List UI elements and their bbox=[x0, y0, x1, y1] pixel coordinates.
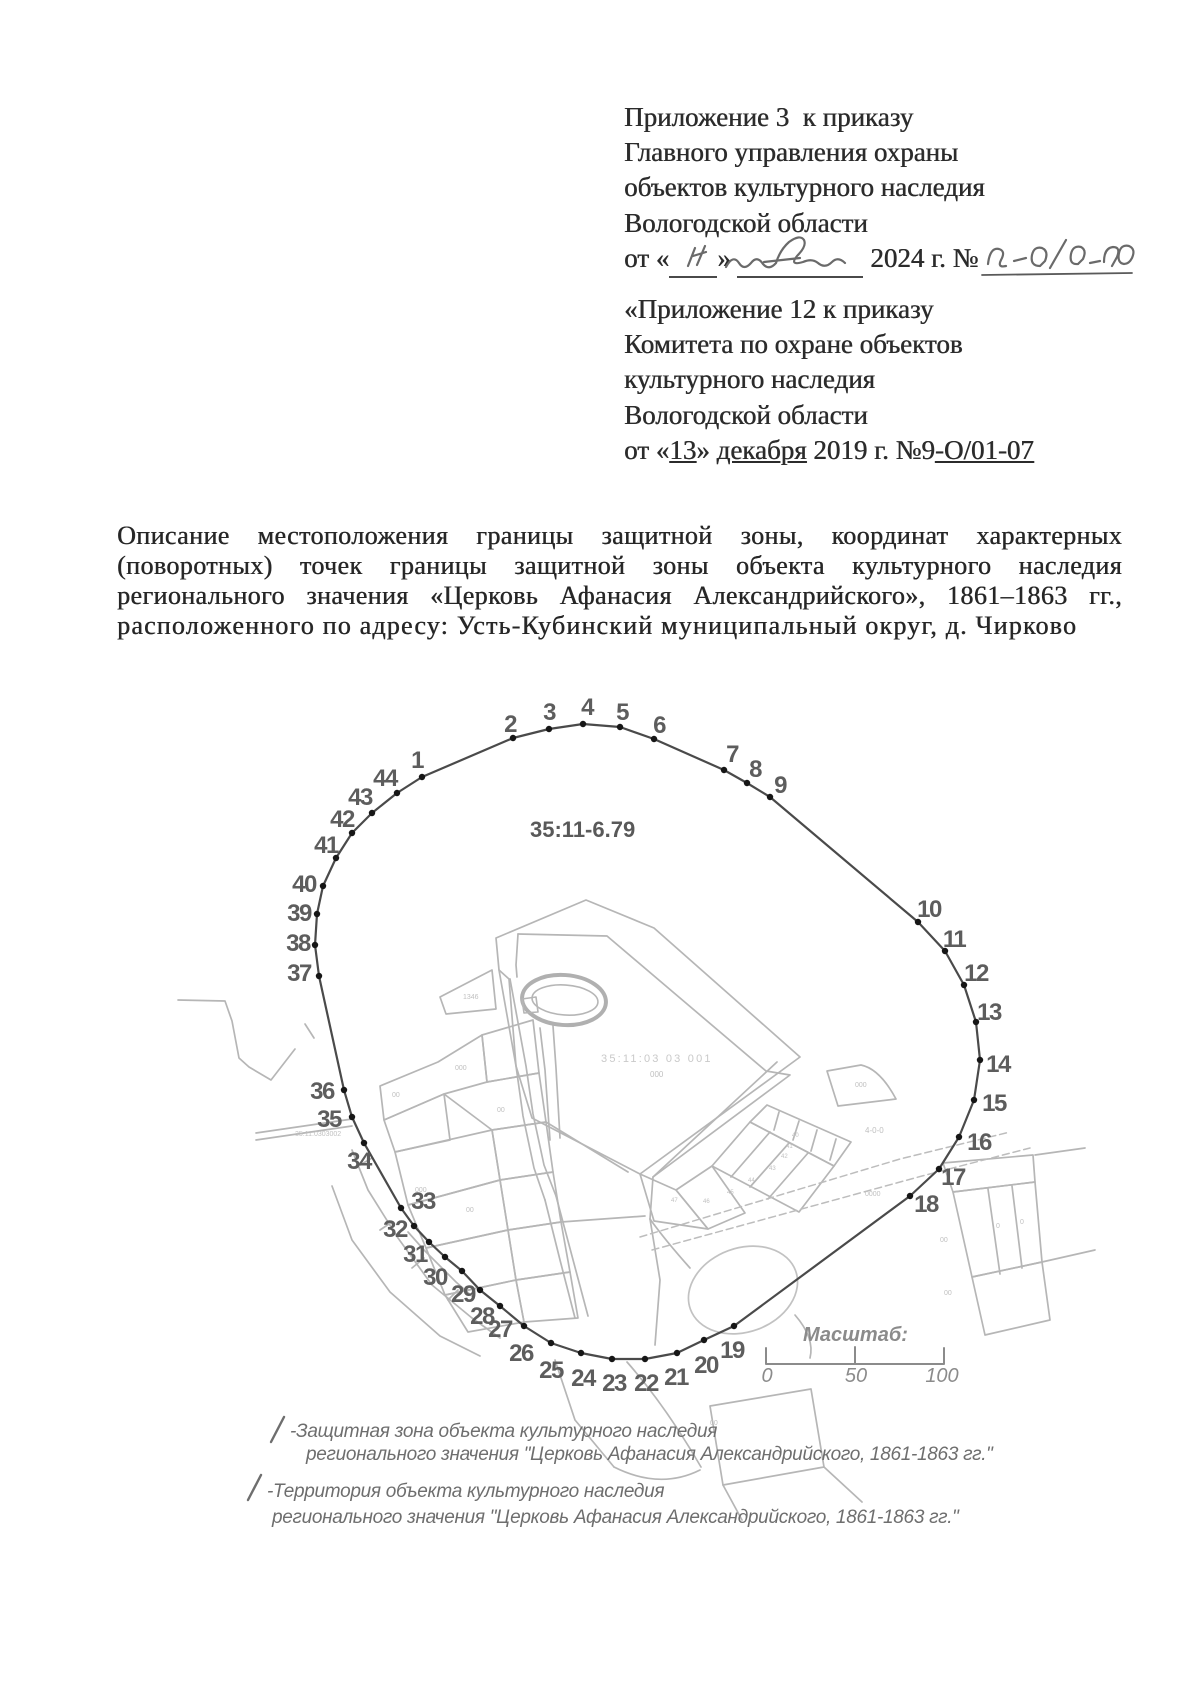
svg-text:Масштаб:: Масштаб: bbox=[803, 1324, 908, 1346]
svg-text:44: 44 bbox=[373, 765, 399, 792]
svg-text:20: 20 bbox=[694, 1352, 719, 1379]
svg-text:-Защитная зона объекта культур: -Защитная зона объекта культурного насле… bbox=[290, 1421, 717, 1442]
svg-text:31: 31 bbox=[403, 1241, 428, 1268]
svg-text:9: 9 bbox=[774, 772, 787, 799]
svg-text:4-0-0: 4-0-0 bbox=[865, 1126, 884, 1135]
svg-text:00: 00 bbox=[466, 1207, 474, 1214]
svg-text:15: 15 bbox=[982, 1090, 1007, 1117]
svg-text:45: 45 bbox=[727, 1190, 734, 1196]
svg-text:40: 40 bbox=[292, 871, 317, 898]
svg-text:50: 50 bbox=[845, 1365, 867, 1387]
svg-text:3: 3 bbox=[543, 699, 556, 726]
svg-text:0: 0 bbox=[996, 1223, 1000, 1230]
svg-text:38: 38 bbox=[286, 930, 311, 957]
svg-text:33: 33 bbox=[411, 1188, 436, 1215]
svg-text:19: 19 bbox=[720, 1337, 745, 1364]
svg-text:42: 42 bbox=[781, 1154, 788, 1160]
svg-text:37: 37 bbox=[287, 960, 312, 987]
svg-text:46: 46 bbox=[703, 1199, 710, 1205]
svg-text:21: 21 bbox=[664, 1364, 689, 1391]
svg-text:0: 0 bbox=[1020, 1219, 1024, 1226]
svg-text:0000: 0000 bbox=[865, 1191, 881, 1198]
svg-text:36: 36 bbox=[310, 1078, 335, 1105]
svg-text:16: 16 bbox=[967, 1129, 992, 1156]
svg-text:34: 34 bbox=[347, 1148, 373, 1175]
svg-text:25: 25 bbox=[539, 1357, 564, 1384]
svg-text:1346: 1346 bbox=[463, 994, 479, 1001]
svg-text:13: 13 bbox=[977, 999, 1002, 1026]
svg-text:7: 7 bbox=[726, 741, 739, 768]
svg-text:23: 23 bbox=[602, 1370, 627, 1397]
svg-text:11: 11 bbox=[943, 926, 967, 953]
svg-text:00: 00 bbox=[392, 1092, 400, 1099]
svg-text:35:11-6.79: 35:11-6.79 bbox=[530, 817, 635, 842]
svg-text:41: 41 bbox=[786, 1144, 793, 1150]
svg-text:12: 12 bbox=[964, 960, 989, 987]
svg-text:-Территория объекта культурног: -Территория объекта культурного наследия bbox=[267, 1481, 664, 1502]
svg-text:1: 1 bbox=[411, 747, 424, 774]
svg-text:000: 000 bbox=[455, 1065, 467, 1072]
svg-text:8: 8 bbox=[749, 756, 762, 783]
svg-text:00: 00 bbox=[497, 1107, 505, 1114]
svg-text:18: 18 bbox=[914, 1191, 939, 1218]
svg-text:32: 32 bbox=[383, 1216, 408, 1243]
svg-text:00: 00 bbox=[940, 1237, 948, 1244]
svg-text:47: 47 bbox=[671, 1198, 678, 1204]
svg-text:24: 24 bbox=[571, 1365, 597, 1392]
svg-text:40: 40 bbox=[792, 1133, 799, 1139]
svg-text:регионального значения "Церков: регионального значения "Церковь Афанасия… bbox=[305, 1444, 994, 1465]
svg-text:100: 100 bbox=[925, 1365, 958, 1387]
svg-text:6: 6 bbox=[653, 712, 666, 739]
svg-text:5: 5 bbox=[616, 699, 629, 726]
svg-text:44: 44 bbox=[748, 1178, 755, 1184]
svg-text:2: 2 bbox=[504, 711, 517, 738]
svg-text:000: 000 bbox=[650, 1070, 664, 1079]
svg-text:43: 43 bbox=[348, 784, 373, 811]
svg-text:00: 00 bbox=[944, 1290, 952, 1297]
svg-text:41: 41 bbox=[314, 832, 339, 859]
svg-text:39: 39 bbox=[287, 900, 312, 927]
svg-text:26: 26 bbox=[509, 1340, 534, 1367]
svg-text:35: 35 bbox=[317, 1106, 342, 1133]
svg-text:35:11:03 03 001: 35:11:03 03 001 bbox=[601, 1053, 713, 1065]
svg-text:43: 43 bbox=[769, 1166, 776, 1172]
svg-text:30: 30 bbox=[423, 1264, 448, 1291]
svg-text:000: 000 bbox=[855, 1082, 867, 1089]
svg-text:0: 0 bbox=[761, 1365, 772, 1387]
svg-text:10: 10 bbox=[917, 896, 942, 923]
svg-text:4: 4 bbox=[581, 694, 595, 721]
svg-text:17: 17 bbox=[941, 1164, 966, 1191]
svg-text:14: 14 bbox=[986, 1051, 1012, 1078]
svg-text:22: 22 bbox=[634, 1370, 659, 1397]
svg-text:регионального значения "Церков: регионального значения "Церковь Афанасия… bbox=[271, 1507, 960, 1528]
svg-text:29: 29 bbox=[451, 1281, 476, 1308]
